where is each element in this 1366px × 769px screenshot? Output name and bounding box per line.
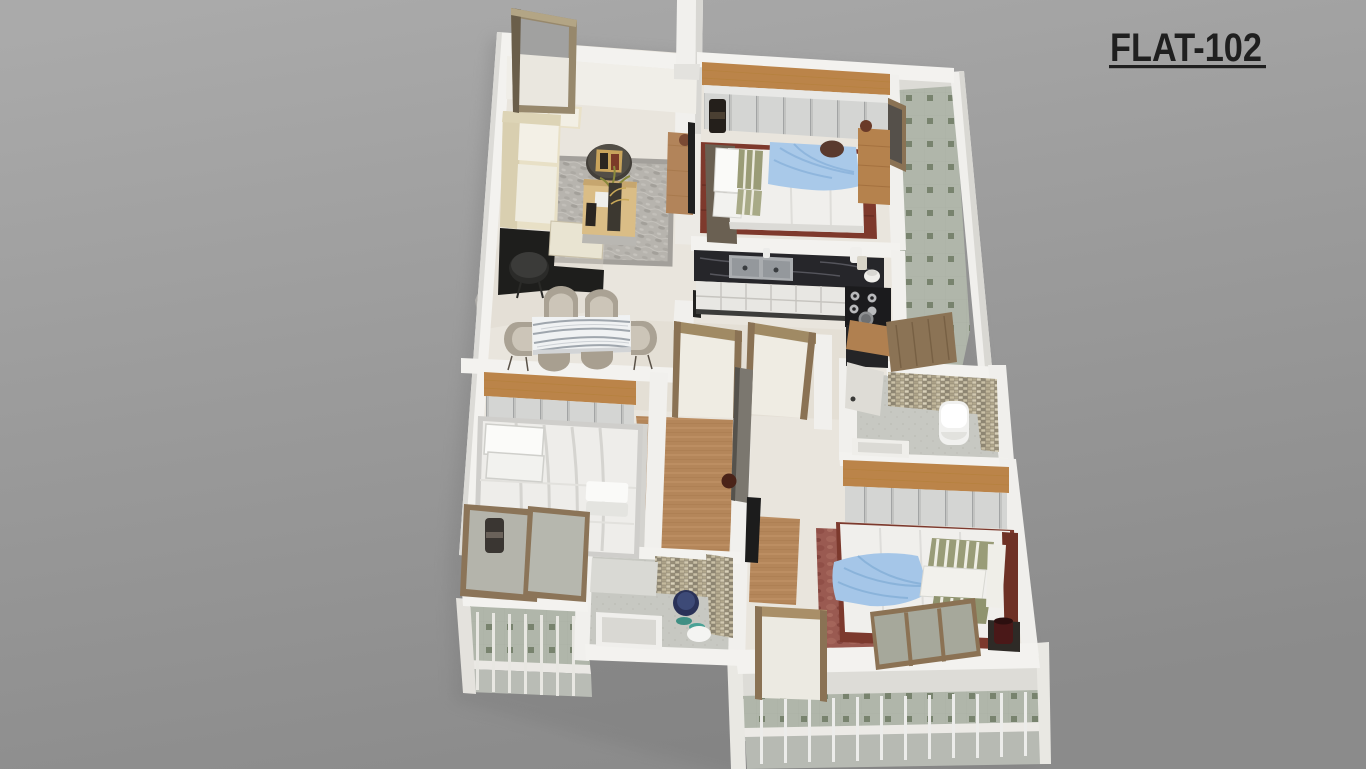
svg-text:FLAT-102: FLAT-102	[1110, 26, 1262, 70]
